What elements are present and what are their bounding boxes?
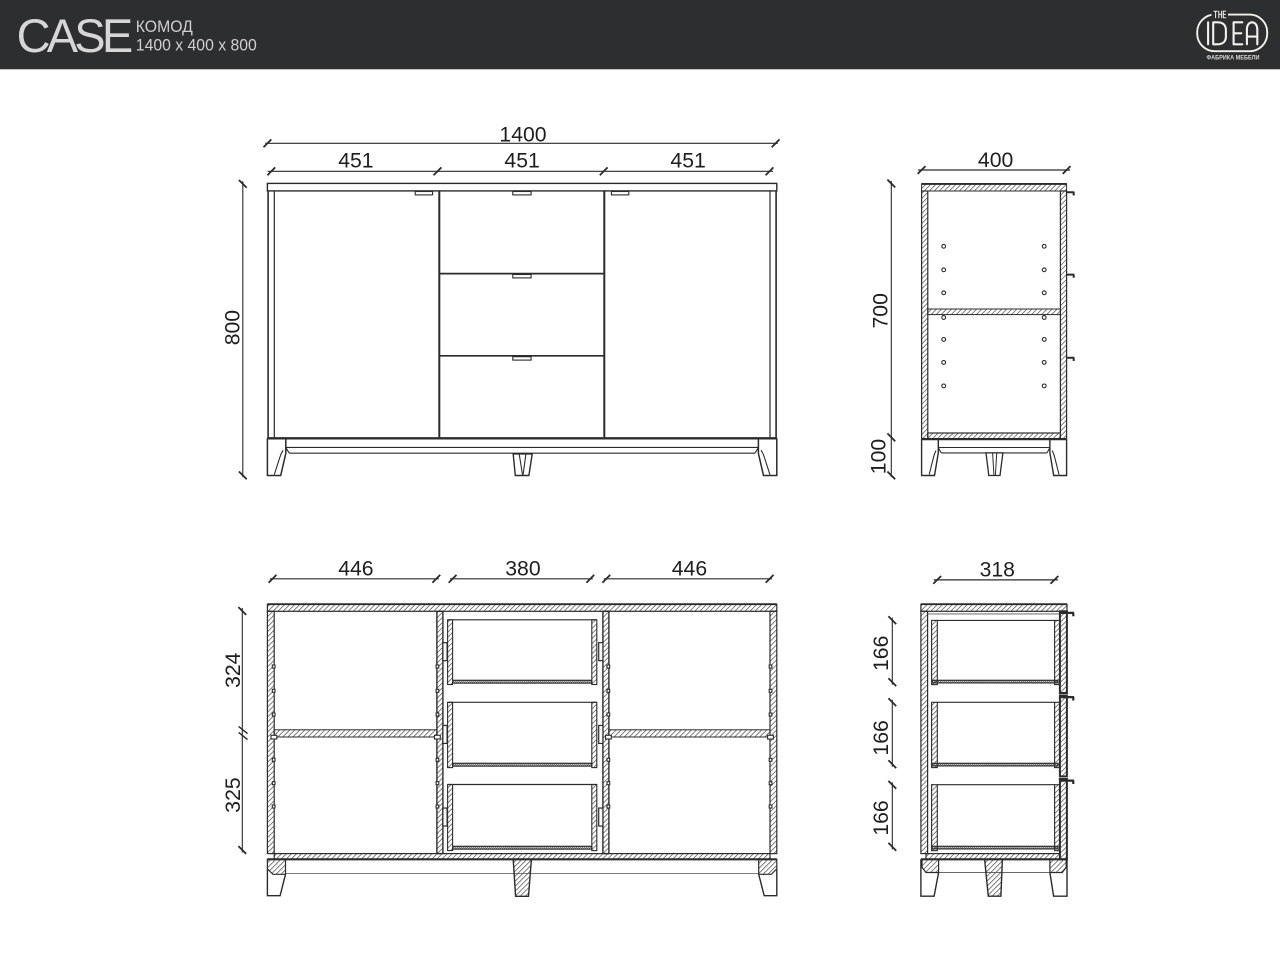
svg-text:446: 446 bbox=[338, 557, 373, 580]
svg-text:400: 400 bbox=[978, 149, 1013, 172]
svg-text:380: 380 bbox=[505, 557, 540, 580]
svg-text:КОМОД: КОМОД bbox=[136, 18, 193, 36]
svg-text:166: 166 bbox=[870, 720, 893, 755]
svg-text:325: 325 bbox=[222, 777, 245, 812]
svg-text:1400: 1400 bbox=[499, 124, 546, 147]
svg-text:CASE: CASE bbox=[17, 9, 132, 62]
svg-text:324: 324 bbox=[222, 652, 245, 688]
svg-text:ФАБРИКА МЕБЕЛИ: ФАБРИКА МЕБЕЛИ bbox=[1207, 54, 1260, 61]
svg-text:451: 451 bbox=[504, 150, 539, 173]
svg-text:700: 700 bbox=[869, 293, 892, 328]
svg-text:451: 451 bbox=[338, 150, 373, 173]
svg-text:166: 166 bbox=[870, 636, 893, 671]
svg-text:1400 x 400 x 800: 1400 x 400 x 800 bbox=[136, 37, 257, 55]
svg-text:451: 451 bbox=[670, 150, 705, 173]
svg-text:446: 446 bbox=[672, 557, 707, 580]
svg-text:166: 166 bbox=[870, 800, 893, 835]
svg-text:318: 318 bbox=[980, 558, 1015, 581]
svg-text:800: 800 bbox=[221, 310, 244, 345]
svg-text:100: 100 bbox=[867, 439, 890, 474]
